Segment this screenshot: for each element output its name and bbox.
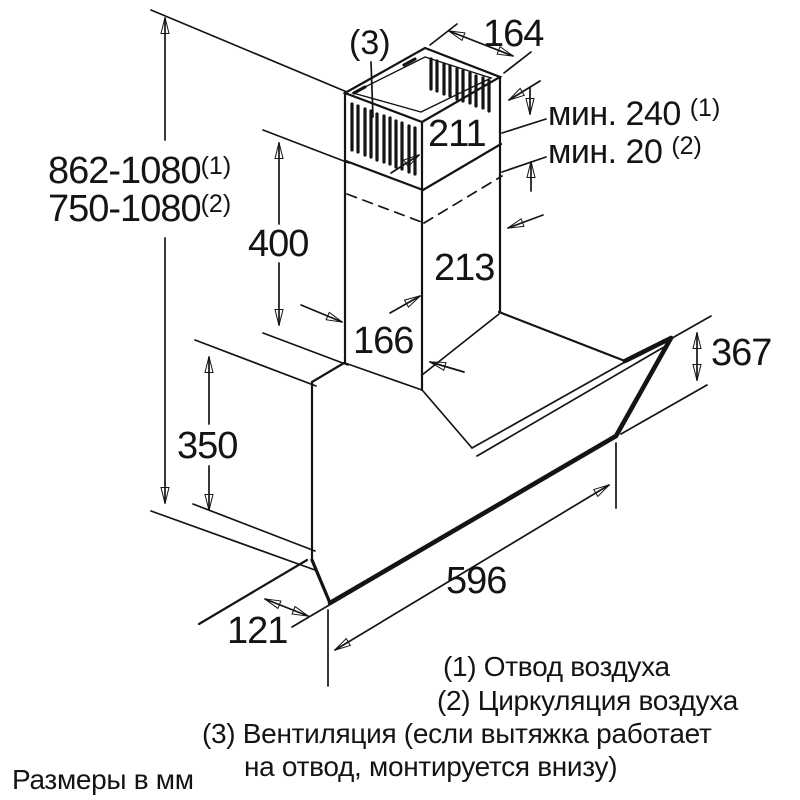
vent-ref-label: (3): [349, 26, 391, 60]
legend-line-3: (3) Вентиляция (если вытяжка работает: [202, 720, 711, 748]
hood-body: [199, 312, 671, 624]
min-20-superscript: (2): [671, 132, 702, 160]
min-clearance-20: мин. 20 (2): [548, 135, 702, 169]
units-note: Размеры в мм: [12, 766, 194, 794]
dimension-367: 367: [711, 334, 771, 372]
dimension-166: 166: [353, 322, 413, 360]
dimension-400: 400: [248, 225, 308, 263]
legend-line-4: на отвод, монтируется внизу): [244, 753, 617, 781]
min-clearance-240: мин. 240 (1): [548, 97, 720, 131]
dimension-121: 121: [227, 612, 287, 650]
dimension-height-range-2: 750-1080(2): [48, 190, 231, 228]
legend-line-1: (1) Отвод воздуха: [443, 653, 670, 681]
dimension-164: 164: [483, 15, 543, 53]
dimension-211: 211: [428, 115, 486, 153]
legend-line-2: (2) Циркуляция воздуха: [437, 687, 738, 715]
dimension-height-range-1: 862-1080(1): [48, 152, 231, 190]
dimension-596: 596: [446, 562, 506, 600]
dimension-213: 213: [434, 249, 494, 287]
height-range-1-superscript: (1): [201, 152, 232, 180]
min-240-superscript: (1): [690, 94, 721, 122]
height-range-2-superscript: (2): [201, 190, 232, 218]
diagram-canvas: 862-1080(1) 750-1080(2) (3) 164 211 213 …: [0, 0, 800, 800]
dimension-350: 350: [177, 427, 237, 465]
